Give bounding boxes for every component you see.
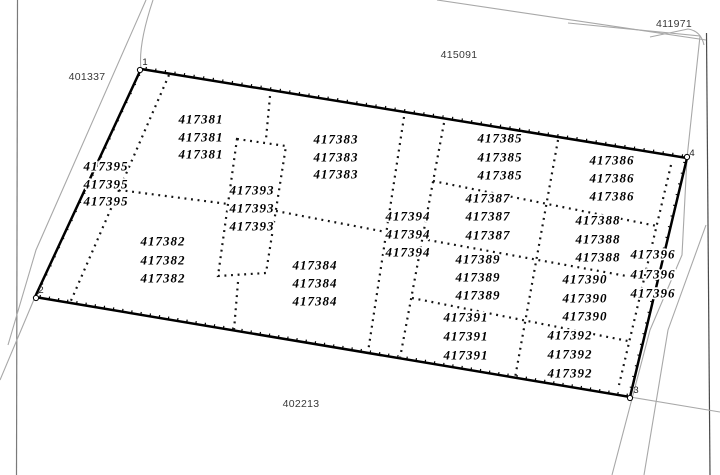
svg-text:417382: 417382 (140, 233, 186, 248)
svg-text:417388: 417388 (575, 231, 621, 246)
svg-text:401337: 401337 (69, 71, 106, 83)
svg-text:417394: 417394 (385, 208, 431, 223)
svg-text:417381: 417381 (178, 129, 224, 144)
svg-text:417382: 417382 (140, 270, 186, 285)
svg-text:417388: 417388 (575, 249, 621, 264)
svg-text:417387: 417387 (465, 190, 511, 205)
svg-text:417392: 417392 (547, 365, 593, 380)
svg-text:3: 3 (633, 385, 638, 396)
svg-text:417390: 417390 (562, 308, 608, 323)
svg-text:417395: 417395 (83, 158, 129, 173)
svg-text:417391: 417391 (443, 328, 489, 343)
svg-text:417382: 417382 (140, 252, 186, 267)
svg-text:417385: 417385 (477, 149, 523, 164)
svg-text:417396: 417396 (630, 266, 676, 281)
svg-text:417391: 417391 (443, 309, 489, 324)
svg-text:417386: 417386 (589, 170, 635, 185)
svg-text:417389: 417389 (455, 287, 501, 302)
svg-text:417394: 417394 (385, 226, 431, 241)
svg-text:417392: 417392 (547, 346, 593, 361)
svg-text:2: 2 (38, 285, 43, 296)
svg-text:417384: 417384 (292, 257, 338, 272)
svg-text:417396: 417396 (630, 246, 676, 261)
svg-text:417391: 417391 (443, 347, 489, 362)
svg-text:417381: 417381 (178, 111, 224, 126)
svg-text:417392: 417392 (547, 327, 593, 342)
svg-text:417394: 417394 (385, 244, 431, 259)
svg-text:417390: 417390 (562, 290, 608, 305)
svg-text:417395: 417395 (83, 193, 129, 208)
svg-text:417388: 417388 (575, 212, 621, 227)
svg-text:417393: 417393 (229, 182, 275, 197)
svg-text:417393: 417393 (229, 200, 275, 215)
svg-text:417386: 417386 (589, 188, 635, 203)
svg-text:417390: 417390 (562, 271, 608, 286)
svg-text:4: 4 (689, 148, 694, 159)
svg-text:402213: 402213 (283, 398, 320, 410)
svg-text:417393: 417393 (229, 218, 275, 233)
svg-text:417383: 417383 (313, 149, 359, 164)
svg-text:411971: 411971 (656, 18, 692, 30)
svg-text:417384: 417384 (292, 293, 338, 308)
svg-text:417395: 417395 (83, 176, 129, 191)
svg-text:417396: 417396 (630, 285, 676, 300)
svg-text:417381: 417381 (178, 146, 224, 161)
svg-text:417383: 417383 (313, 131, 359, 146)
svg-text:417389: 417389 (455, 269, 501, 284)
svg-text:417387: 417387 (465, 208, 511, 223)
svg-text:1: 1 (142, 57, 147, 68)
svg-text:417383: 417383 (313, 166, 359, 181)
svg-text:417385: 417385 (477, 167, 523, 182)
svg-text:417384: 417384 (292, 275, 338, 290)
svg-text:417386: 417386 (589, 152, 635, 167)
svg-text:415091: 415091 (441, 49, 478, 61)
svg-text:417389: 417389 (455, 251, 501, 266)
svg-text:417385: 417385 (477, 130, 523, 145)
svg-text:417387: 417387 (465, 227, 511, 242)
